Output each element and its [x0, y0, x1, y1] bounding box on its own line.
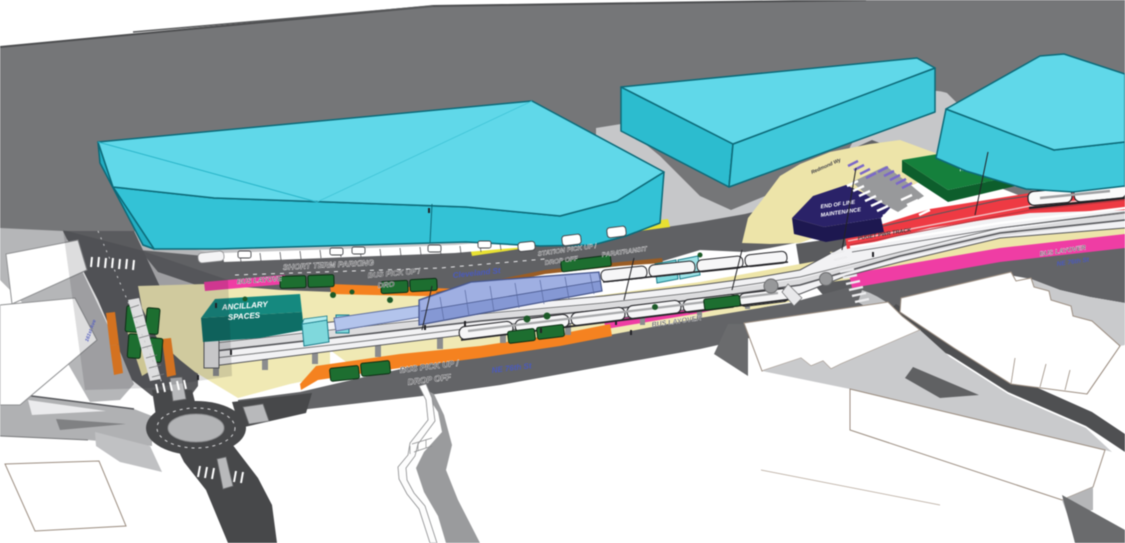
svg-text:DRO: DRO: [377, 280, 395, 290]
